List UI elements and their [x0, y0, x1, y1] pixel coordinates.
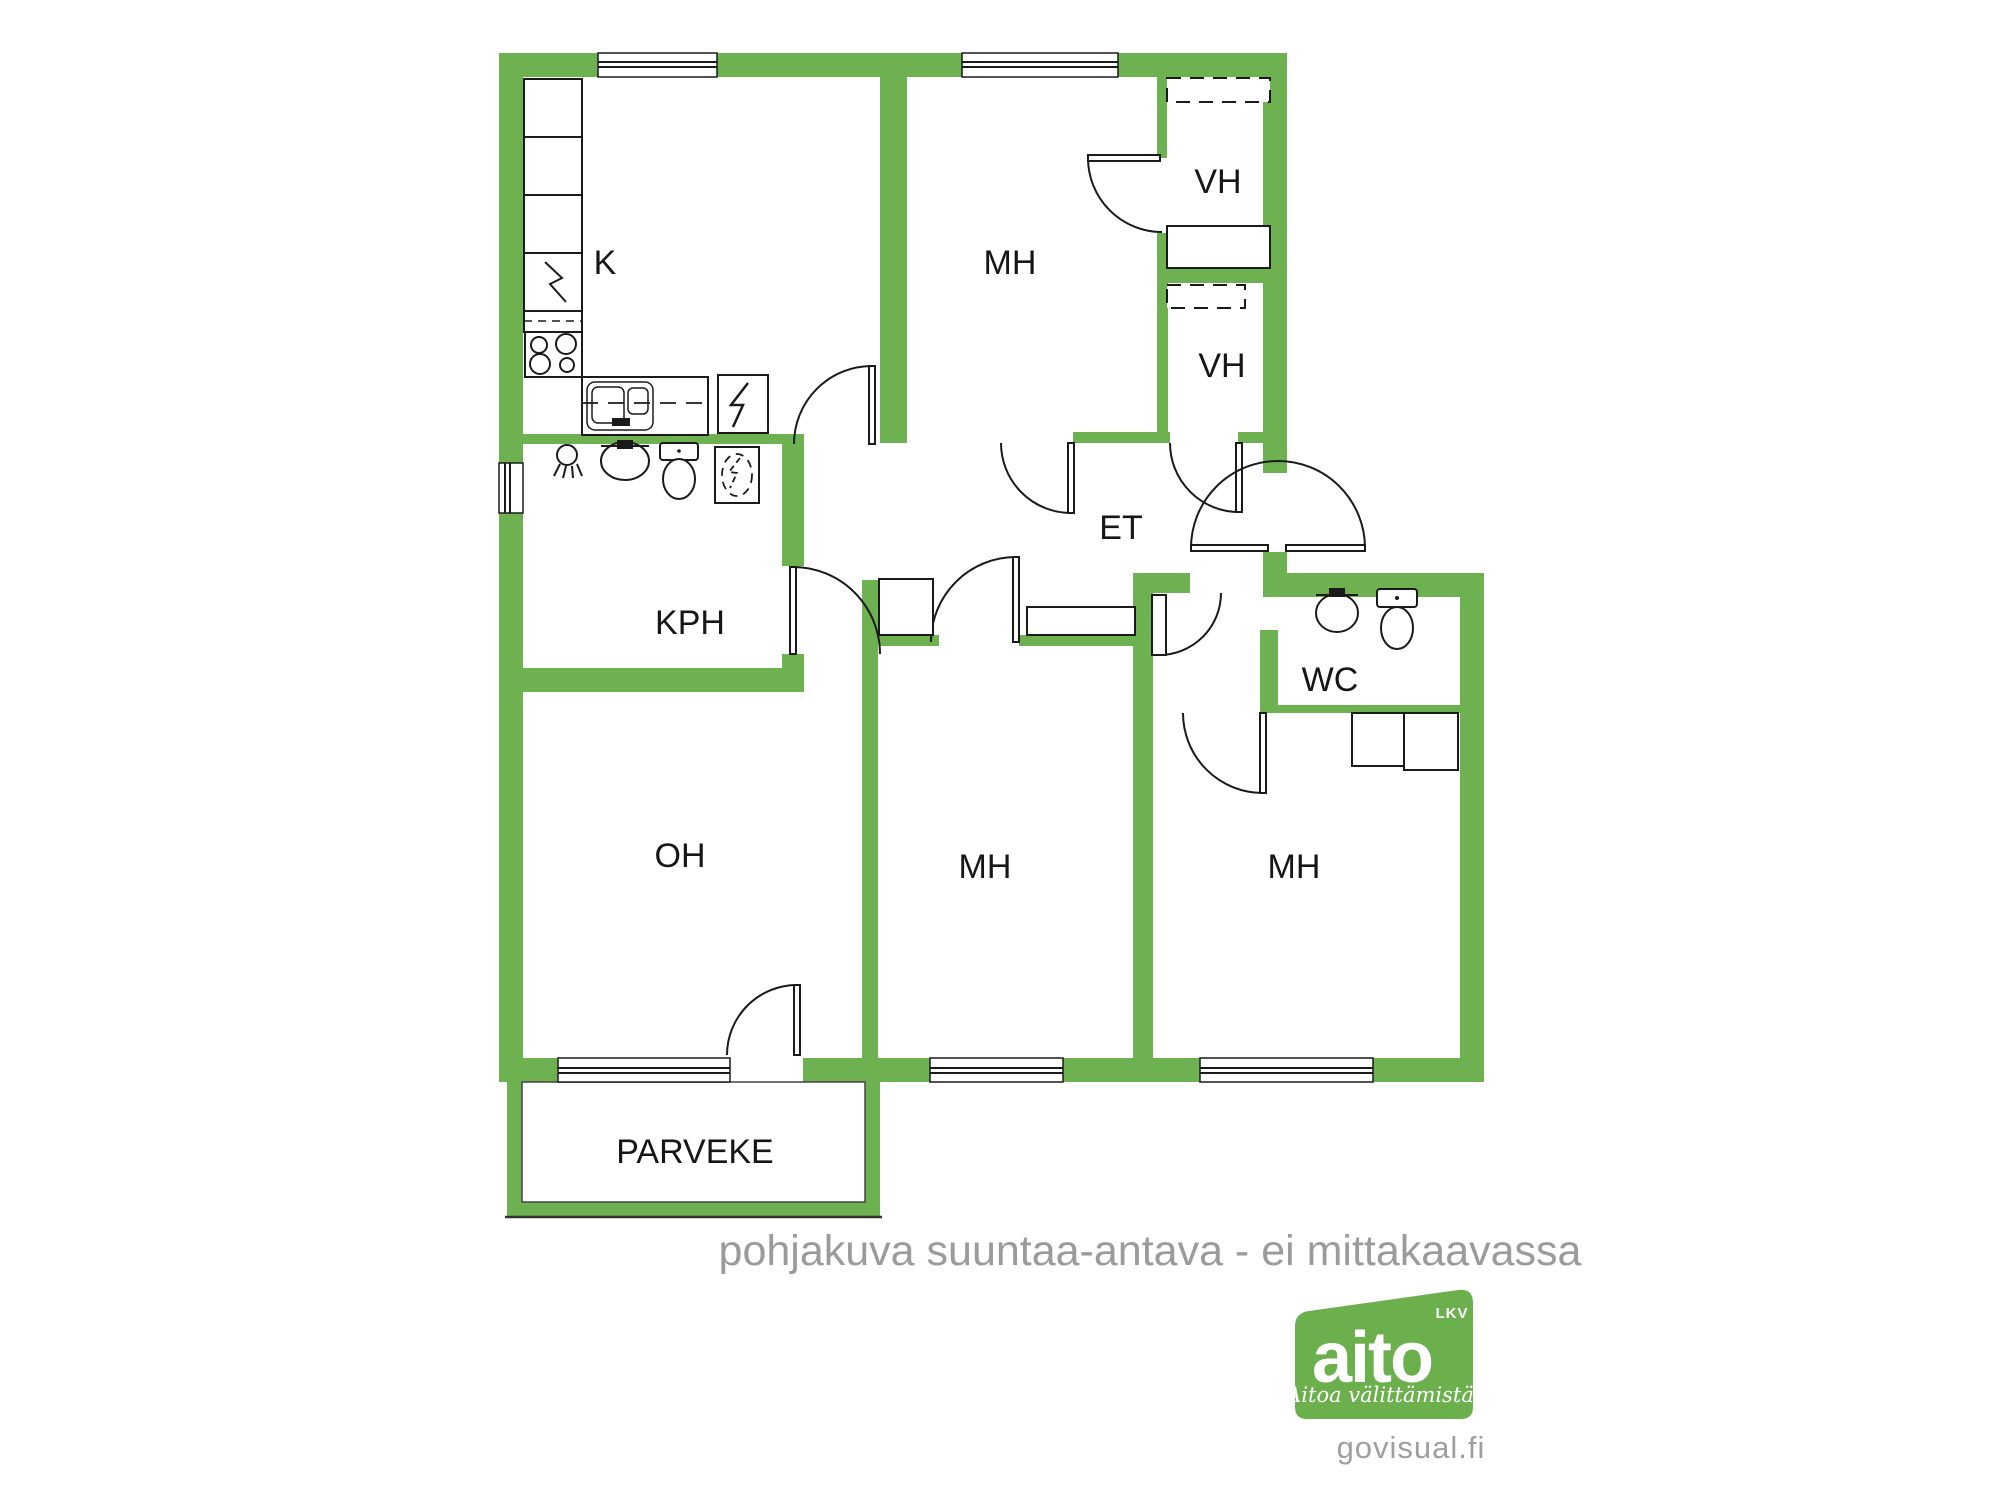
- room-label-kitchen: K: [594, 244, 617, 282]
- door-icon-closet-lower: [1170, 443, 1242, 512]
- room-labels: K MH VH VH ET KPH WC OH MH MH PARVEKE: [594, 163, 1359, 1171]
- disclaimer-text: pohjakuva suuntaa-antava - ei mittakaava…: [719, 1227, 1582, 1275]
- wardrobe-icon-closet-upper: [1167, 78, 1270, 102]
- door-icon-kitchen: [794, 366, 875, 444]
- kitchen-sink-icon: [582, 377, 708, 435]
- door-icon-bedroom-top: [1001, 443, 1074, 513]
- window-icon-bedroom-right: [1200, 1058, 1373, 1082]
- room-label-bedroom-middle: MH: [959, 848, 1012, 886]
- windows: [499, 53, 1373, 1082]
- cabinet-icon-kitchen: [524, 79, 582, 332]
- window-icon-left-wall: [499, 463, 523, 513]
- walls: [499, 53, 1484, 1216]
- toilet-icon-bathroom: [660, 443, 698, 499]
- aito-logo: aito LKV Aitoa välittämistä: [1284, 1290, 1474, 1419]
- room-label-closet-upper: VH: [1194, 163, 1241, 201]
- room-label-balcony: PARVEKE: [616, 1133, 773, 1171]
- shower-icon: [554, 445, 582, 478]
- shelf-icon-closet-upper: [1167, 226, 1270, 268]
- wardrobe-icon-closet-lower: [1167, 285, 1245, 308]
- room-label-toilet: WC: [1302, 661, 1359, 699]
- wardrobe-icon-hall-long: [1027, 607, 1135, 635]
- aito-logo-tagline: Aitoa välittämistä: [1284, 1383, 1474, 1407]
- room-label-living-room: OH: [655, 837, 706, 875]
- stove-icon: [525, 332, 582, 377]
- room-label-hallway: ET: [1099, 509, 1142, 547]
- door-icon-closet-upper: [1088, 155, 1162, 232]
- door-icon-bedroom-middle: [931, 557, 1019, 642]
- window-icon-bedroom-top: [962, 53, 1118, 77]
- door-icon-entry: [1191, 461, 1365, 551]
- window-icon-living-room: [558, 1058, 730, 1082]
- washing-machine-icon: [715, 447, 759, 503]
- door-icon-bedroom-right: [1183, 713, 1266, 793]
- room-label-bedroom-top: MH: [984, 244, 1037, 282]
- room-label-bedroom-right: MH: [1268, 848, 1321, 886]
- room-label-bathroom: KPH: [655, 604, 725, 642]
- website-text: govisual.fi: [1337, 1430, 1486, 1465]
- window-icon-bedroom-middle: [930, 1058, 1063, 1082]
- bathroom-sink-icon: [601, 440, 649, 480]
- floor-plan-canvas: K MH VH VH ET KPH WC OH MH MH PARVEKE po…: [0, 0, 2000, 1500]
- window-icon-kitchen: [598, 53, 717, 77]
- toilet-icon-wc: [1377, 589, 1417, 649]
- wardrobe-icon-bedroom-right: [1352, 713, 1458, 770]
- door-icon-wc: [1152, 593, 1221, 655]
- room-label-closet-lower: VH: [1198, 347, 1245, 385]
- wardrobe-icon-hall-square: [879, 579, 933, 635]
- bathroom-sink-icon-wc: [1316, 588, 1358, 632]
- floor-plan-page: K MH VH VH ET KPH WC OH MH MH PARVEKE po…: [0, 0, 2000, 1500]
- aito-logo-lkv: LKV: [1436, 1305, 1469, 1322]
- door-icon-balcony: [727, 985, 800, 1055]
- electrical-panel-icon: [718, 375, 768, 433]
